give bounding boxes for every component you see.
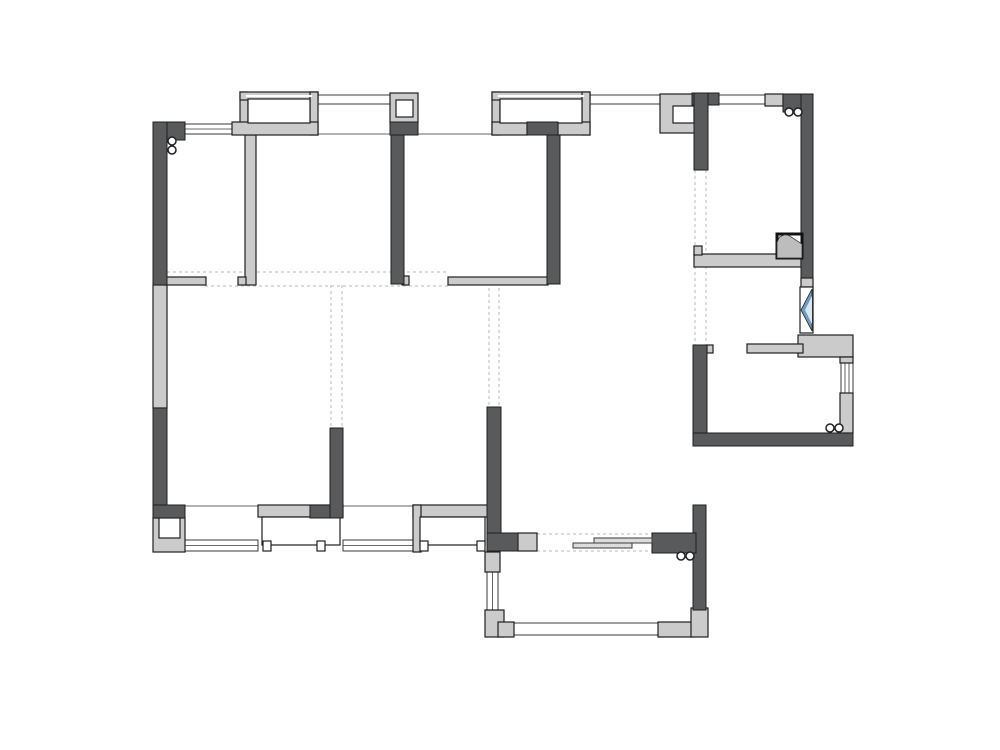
balcony-bottom-right-block [658, 622, 693, 637]
bay4-foot-left [263, 541, 271, 551]
wall-kitchen-left [693, 345, 707, 446]
wall-center-vertical [487, 407, 501, 535]
sliding-door-leaf-2 [573, 543, 632, 548]
window-right-side [841, 363, 853, 393]
balcony-bottom-left-step [498, 622, 514, 637]
wall-bed3-right [547, 135, 560, 284]
bay2-glazing-area [500, 99, 582, 123]
block-center-foot [518, 533, 537, 551]
column3-inner [396, 100, 413, 117]
window-band-1 [318, 95, 390, 104]
bay4-box [262, 517, 340, 545]
block-top-right [765, 94, 783, 106]
wall-kitchen-bottom [693, 433, 853, 446]
bay3-foot-right [477, 541, 485, 551]
marker-kitchen-a [826, 424, 834, 432]
bay3-foot-left [420, 541, 428, 551]
wall-bed1-bed2 [245, 135, 256, 285]
bay2-sill-left [492, 122, 527, 135]
block-bottom-left-inner [159, 518, 180, 538]
bay1-glазing-area [248, 99, 310, 123]
bay1-sill [232, 122, 318, 135]
window-band-2 [590, 95, 662, 104]
bay3-top-frame [413, 505, 488, 517]
marker-kitchen-b [835, 424, 843, 432]
bay2-sill-right [558, 122, 590, 135]
counter-lower [747, 344, 803, 353]
bay3-box [420, 517, 485, 545]
kitchen-wall-notch [707, 345, 713, 353]
wall-left-lower [153, 408, 167, 518]
wall-above-bay4 [330, 428, 343, 518]
wall-bottom-left-corner [153, 505, 185, 518]
wall-right-lower-vertical [693, 505, 706, 610]
marker-top-right-b [794, 108, 802, 116]
wall-center-foot [487, 533, 518, 551]
counter-upper-stub [694, 246, 702, 255]
column3-base [390, 122, 418, 135]
stub-wall-bed1 [165, 277, 206, 285]
marker-top-left-a [168, 137, 176, 145]
column4-inner [673, 106, 694, 123]
window-band-3 [719, 95, 765, 104]
wall-entry-top [694, 93, 708, 170]
block-right-wall [801, 278, 813, 287]
wall-left-middle [153, 285, 167, 408]
sill-bed3 [448, 277, 548, 285]
balcony-top-left-block [485, 552, 500, 572]
bay2-base-dark-segment [527, 122, 558, 135]
wall-left-upper [153, 122, 167, 285]
wall-bed2-bed3 [391, 135, 404, 284]
marker-balcony-a [677, 552, 685, 560]
marker-top-right-a [785, 108, 793, 116]
sliding-door-leaf-1 [594, 538, 652, 543]
balcony-right-block [691, 608, 708, 637]
window-balcony-bottom [514, 623, 660, 635]
marker-top-left-b [168, 146, 176, 154]
wall-bed1-bed2-foot [238, 277, 246, 285]
floor-plan-page [0, 0, 1000, 750]
block-right-window-top [840, 357, 853, 363]
bay4-foot-right [317, 541, 325, 551]
marker-balcony-b [686, 552, 694, 560]
wall-step-out [798, 335, 853, 357]
floor-plan-canvas [0, 0, 1000, 750]
wall-right-lower-horizontal [652, 533, 696, 553]
